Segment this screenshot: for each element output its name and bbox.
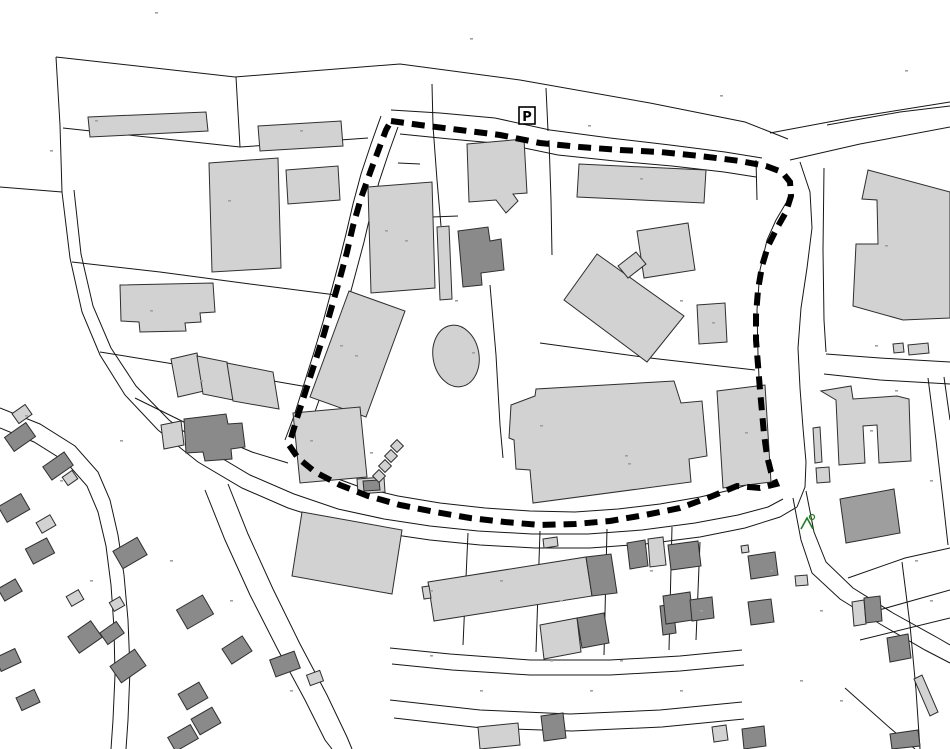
parking-symbol: P bbox=[519, 107, 535, 125]
cadastral-map: P bbox=[0, 0, 950, 749]
parking-symbol-letter: P bbox=[522, 110, 532, 125]
cadastral-map-page: P bbox=[0, 0, 950, 749]
